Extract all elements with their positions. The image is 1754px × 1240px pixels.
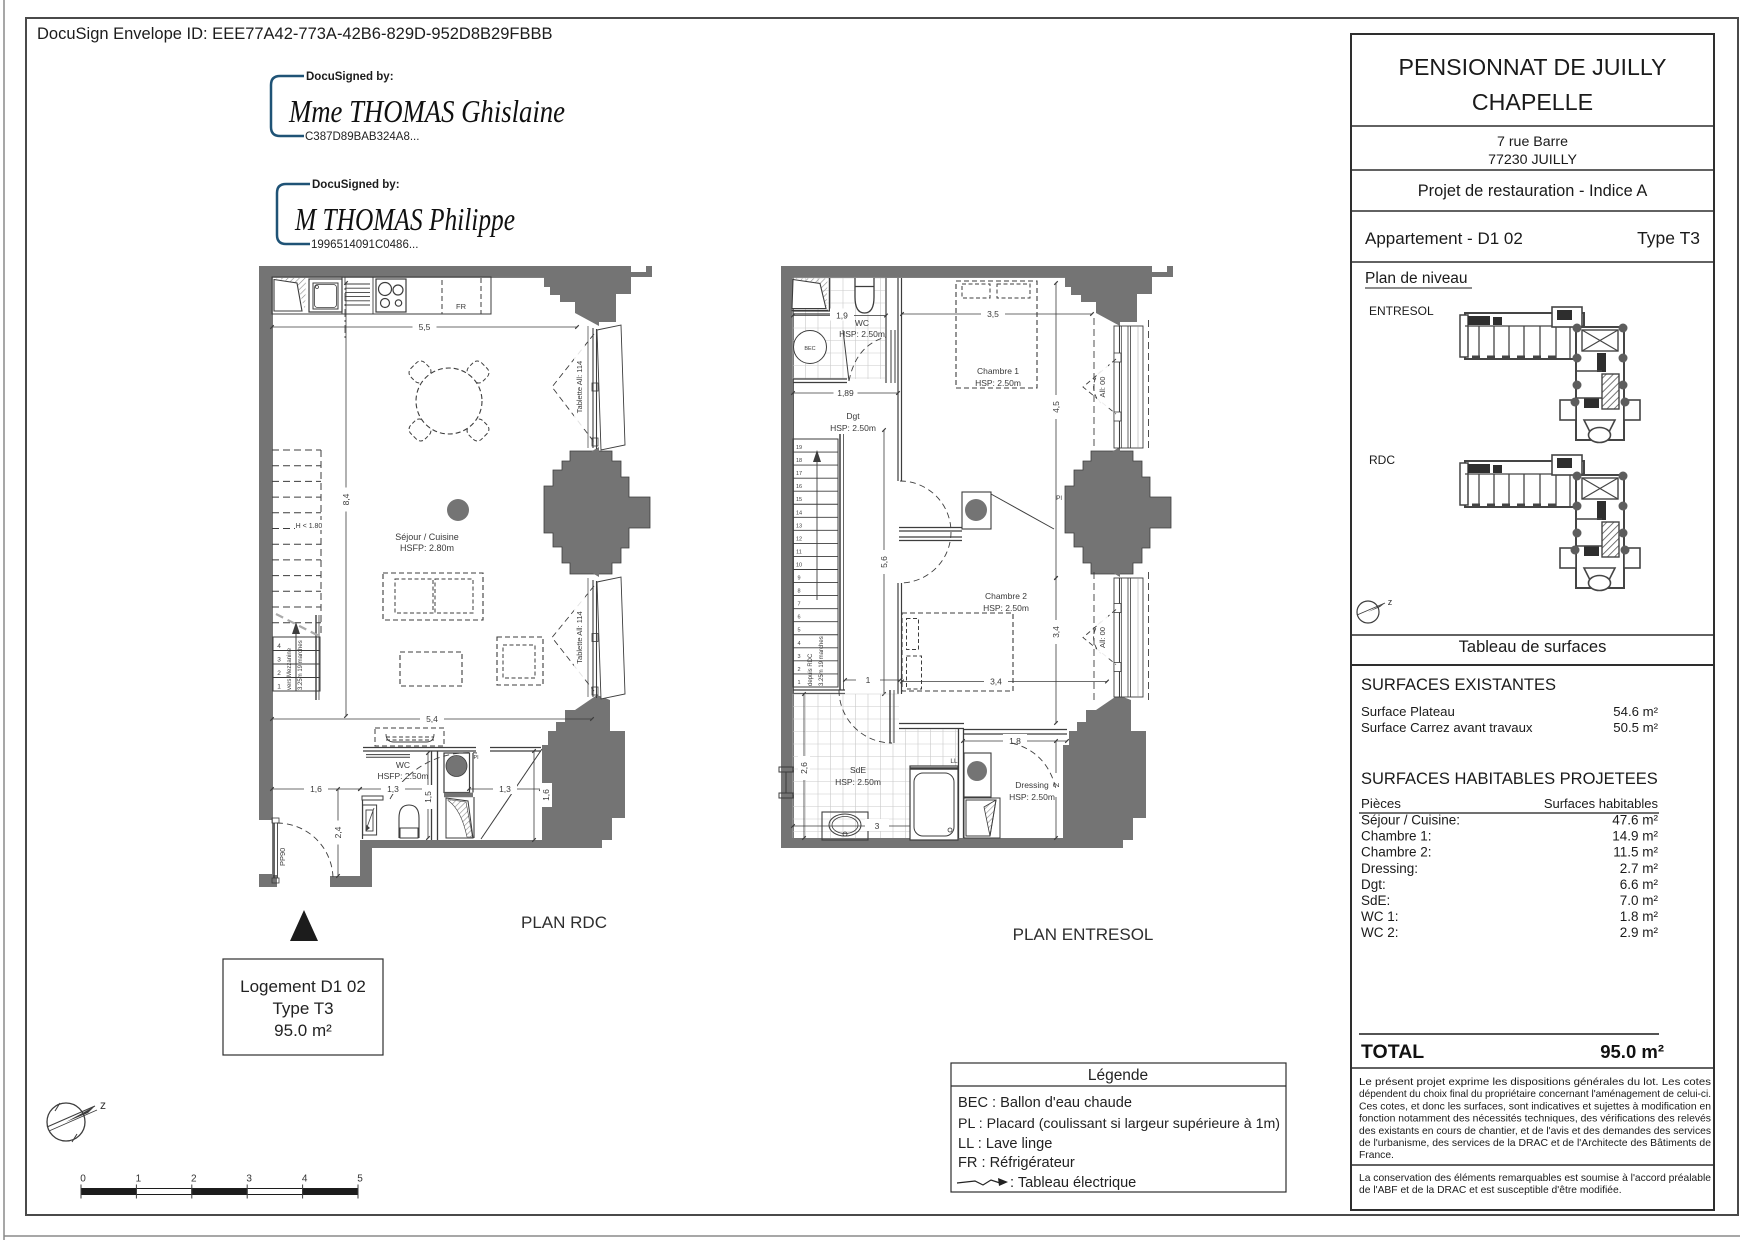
- svg-text:de l'ABF et de la DRAC et est: de l'ABF et de la DRAC et est susceptibl…: [1359, 1185, 1622, 1196]
- svg-text:Mme THOMAS Ghislaine: Mme THOMAS Ghislaine: [288, 93, 565, 129]
- svg-text:PENSIONNAT DE JUILLY: PENSIONNAT DE JUILLY: [1398, 54, 1666, 80]
- svg-text:Surface Carrez avant travaux: Surface Carrez avant travaux: [1361, 720, 1533, 735]
- svg-text:HSP: 2.50m: HSP: 2.50m: [1009, 792, 1055, 802]
- svg-text:12: 12: [796, 536, 802, 542]
- svg-text:Plan de niveau: Plan de niveau: [1365, 270, 1468, 287]
- svg-text:3,5: 3,5: [987, 309, 999, 319]
- svg-text:17: 17: [796, 471, 802, 477]
- svg-text:1,3: 1,3: [387, 784, 399, 794]
- svg-text:2.9 m²: 2.9 m²: [1620, 925, 1659, 940]
- svg-text:LL: LL: [950, 758, 958, 765]
- svg-text:5,5: 5,5: [419, 322, 431, 332]
- svg-text:WC 2:: WC 2:: [1361, 925, 1399, 940]
- svg-text:Surface Plateau: Surface Plateau: [1361, 704, 1455, 719]
- svg-text:HSP: 2.50m: HSP: 2.50m: [839, 329, 885, 339]
- svg-text:11: 11: [796, 549, 802, 555]
- svg-text:All: 00: All: 00: [1098, 377, 1107, 398]
- svg-text:HSP: 2.50m: HSP: 2.50m: [975, 378, 1021, 388]
- svg-text:de l'urbanisme, des services d: de l'urbanisme, des services de la DRAC …: [1359, 1138, 1711, 1149]
- svg-text:8,4: 8,4: [341, 493, 351, 505]
- svg-text:WC: WC: [855, 318, 869, 328]
- svg-text:15: 15: [796, 497, 802, 503]
- svg-text:4: 4: [277, 643, 281, 650]
- svg-text:5,6: 5,6: [879, 556, 889, 568]
- svg-text:Pièces: Pièces: [1361, 796, 1401, 811]
- svg-text:M THOMAS Philippe: M THOMAS Philippe: [294, 201, 515, 237]
- svg-text:7 rue Barre: 7 rue Barre: [1497, 134, 1568, 150]
- svg-text:18: 18: [796, 458, 802, 464]
- svg-text:2,6: 2,6: [799, 762, 809, 774]
- svg-text:fonction notamment des nécessi: fonction notamment des nécessités techni…: [1359, 1114, 1711, 1125]
- svg-text:All: 00: All: 00: [1098, 627, 1107, 648]
- svg-text:Projet de restauration - Indic: Projet de restauration - Indice A: [1418, 182, 1648, 200]
- svg-text:1996514091C0486...: 1996514091C0486...: [311, 239, 418, 251]
- svg-text:13: 13: [796, 523, 802, 529]
- svg-text:HSFP: 2.80m: HSFP: 2.80m: [400, 543, 454, 553]
- svg-text:3.25m 19 marches: 3.25m 19 marches: [298, 640, 304, 690]
- svg-text:Logement D1 02: Logement D1 02: [240, 977, 366, 996]
- svg-text:95.0 m²: 95.0 m²: [1600, 1041, 1664, 1062]
- svg-text:2: 2: [797, 667, 800, 673]
- svg-text:2.7 m²: 2.7 m²: [1620, 861, 1659, 876]
- svg-text:BEC : Ballon d'eau chaude: BEC : Ballon d'eau chaude: [958, 1095, 1132, 1111]
- svg-text:3: 3: [277, 657, 281, 664]
- svg-text:Chambre 2:: Chambre 2:: [1361, 845, 1432, 860]
- svg-text:5,4: 5,4: [426, 714, 438, 724]
- svg-text:7.0 m²: 7.0 m²: [1620, 893, 1659, 908]
- svg-text:Tableau de surfaces: Tableau de surfaces: [1459, 638, 1607, 656]
- svg-text:Dressing:: Dressing:: [1361, 861, 1418, 876]
- svg-text:8: 8: [797, 589, 800, 595]
- svg-text:BEC: BEC: [804, 346, 815, 352]
- svg-text:50.5 m²: 50.5 m²: [1613, 720, 1658, 735]
- svg-text:14.9 m²: 14.9 m²: [1612, 829, 1658, 844]
- svg-text:4: 4: [797, 641, 800, 647]
- svg-text:2: 2: [277, 670, 281, 677]
- svg-text:5: 5: [797, 628, 800, 634]
- svg-text:54.6 m²: 54.6 m²: [1613, 704, 1658, 719]
- svg-text:DocuSigned by:: DocuSigned by:: [306, 71, 394, 83]
- svg-text:3: 3: [246, 1174, 252, 1185]
- svg-text:16: 16: [796, 484, 802, 490]
- svg-text:SdE:: SdE:: [1361, 893, 1390, 908]
- svg-text:4: 4: [302, 1174, 308, 1185]
- svg-text:Dressing: Dressing: [1015, 780, 1049, 790]
- svg-text:9: 9: [797, 576, 800, 582]
- svg-text:CHAPELLE: CHAPELLE: [1472, 89, 1593, 115]
- svg-text:Tablette All: 114: Tablette All: 114: [575, 611, 584, 663]
- svg-text:Chambre 1:: Chambre 1:: [1361, 829, 1432, 844]
- svg-text:3,4: 3,4: [1051, 626, 1061, 638]
- svg-text:SURFACES EXISTANTES: SURFACES EXISTANTES: [1361, 676, 1556, 694]
- svg-text:Pl: Pl: [1056, 495, 1062, 502]
- svg-text:Pl: Pl: [474, 755, 479, 761]
- svg-text:Chambre 1: Chambre 1: [977, 366, 1019, 376]
- svg-text:Type T3: Type T3: [272, 999, 333, 1018]
- svg-text:1,3: 1,3: [499, 784, 511, 794]
- svg-text:SdE: SdE: [850, 765, 866, 775]
- svg-text:6: 6: [797, 615, 800, 621]
- svg-text:2: 2: [191, 1174, 197, 1185]
- svg-text:WC 1:: WC 1:: [1361, 909, 1399, 924]
- svg-text:11.5 m²: 11.5 m²: [1613, 845, 1658, 860]
- svg-text:DocuSigned by:: DocuSigned by:: [312, 179, 400, 191]
- svg-text:PLAN ENTRESOL: PLAN ENTRESOL: [1013, 925, 1154, 944]
- svg-text:Séjour / Cuisine:: Séjour / Cuisine:: [1361, 813, 1460, 828]
- svg-text:1.8 m²: 1.8 m²: [1620, 909, 1659, 924]
- svg-text:Type T3: Type T3: [1637, 228, 1700, 248]
- svg-text:3: 3: [797, 654, 800, 660]
- svg-text:14: 14: [796, 510, 802, 516]
- svg-text:Appartement - D1 02: Appartement - D1 02: [1365, 229, 1523, 248]
- svg-text:: Tableau électrique: : Tableau électrique: [1010, 1175, 1136, 1191]
- svg-text:PL : Placard (coulissant si la: PL : Placard (coulissant si largeur supé…: [958, 1115, 1280, 1131]
- svg-text:z: z: [100, 1098, 106, 1112]
- svg-text:1,9: 1,9: [836, 311, 848, 321]
- svg-text:1: 1: [866, 675, 871, 685]
- svg-text:FR: FR: [456, 302, 467, 311]
- svg-text:0: 0: [80, 1174, 86, 1185]
- svg-text:SURFACES HABITABLES PROJETEES: SURFACES HABITABLES PROJETEES: [1361, 770, 1658, 788]
- svg-text:5: 5: [357, 1174, 363, 1185]
- svg-text:HSP: 2.50m: HSP: 2.50m: [830, 423, 876, 433]
- svg-text:1,5: 1,5: [423, 791, 433, 803]
- svg-text:HSP: 2.50m: HSP: 2.50m: [983, 603, 1029, 613]
- svg-text:Chambre 2: Chambre 2: [985, 591, 1027, 601]
- svg-text:3: 3: [875, 821, 880, 831]
- svg-text:1,6: 1,6: [310, 784, 322, 794]
- svg-text:95.0 m²: 95.0 m²: [274, 1021, 332, 1040]
- svg-text:RDC: RDC: [1369, 453, 1395, 467]
- svg-text:Dgt: Dgt: [846, 411, 860, 421]
- svg-text:1: 1: [797, 680, 800, 686]
- svg-text:depuis RDC: depuis RDC: [808, 653, 814, 686]
- svg-text:des existants en cours de chan: des existants en cours de chantier, et d…: [1359, 1126, 1711, 1137]
- svg-text:1: 1: [277, 684, 281, 691]
- svg-text:1,89: 1,89: [837, 388, 854, 398]
- svg-text:2,4: 2,4: [333, 826, 343, 838]
- svg-text:1,6: 1,6: [541, 789, 551, 801]
- svg-text:H < 1.80: H < 1.80: [296, 523, 323, 530]
- svg-text:HSP: 2.50m: HSP: 2.50m: [835, 777, 881, 787]
- svg-text:HSFP: 2.50m: HSFP: 2.50m: [377, 771, 428, 781]
- svg-text:dépendent du choix final du pr: dépendent du choix final du propriétaire…: [1359, 1089, 1711, 1100]
- svg-text:1,8: 1,8: [1009, 736, 1021, 746]
- svg-text:Surfaces habitables: Surfaces habitables: [1544, 796, 1659, 811]
- svg-text:vers Mezzanine: vers Mezzanine: [287, 647, 293, 690]
- svg-text:C387D89BAB324A8...: C387D89BAB324A8...: [305, 131, 419, 143]
- svg-text:TOTAL: TOTAL: [1361, 1041, 1424, 1063]
- svg-text:z: z: [1388, 597, 1393, 607]
- svg-text:Dgt:: Dgt:: [1361, 877, 1386, 892]
- svg-text:Séjour / Cuisine: Séjour / Cuisine: [395, 532, 459, 542]
- svg-text:2: 2: [1051, 782, 1061, 787]
- svg-text:FR : Réfrigérateur: FR : Réfrigérateur: [958, 1155, 1075, 1171]
- svg-text:Légende: Légende: [1088, 1067, 1148, 1084]
- svg-text:47.6 m²: 47.6 m²: [1612, 813, 1658, 828]
- svg-text:PLAN RDC: PLAN RDC: [521, 913, 607, 932]
- svg-text:6.6 m²: 6.6 m²: [1620, 877, 1659, 892]
- svg-text:Tablette All: 114: Tablette All: 114: [575, 361, 584, 413]
- svg-text:1: 1: [136, 1174, 142, 1185]
- svg-text:77230 JUILLY: 77230 JUILLY: [1488, 152, 1577, 168]
- svg-text:La conservation des éléments r: La conservation des éléments remarquable…: [1359, 1173, 1711, 1184]
- svg-text:ENTRESOL: ENTRESOL: [1369, 304, 1434, 318]
- svg-text:Le présent projet exprime les: Le présent projet exprime les dispositio…: [1359, 1077, 1711, 1088]
- svg-text:WC: WC: [396, 760, 410, 770]
- svg-text:Ces cotes, et donc les surface: Ces cotes, et donc les surfaces, sont in…: [1359, 1101, 1711, 1112]
- svg-text:10: 10: [796, 562, 802, 568]
- svg-text:France.: France.: [1359, 1150, 1394, 1161]
- svg-text:19: 19: [796, 445, 802, 451]
- svg-text:7: 7: [797, 602, 800, 608]
- svg-text:3.25m 19 marches: 3.25m 19 marches: [819, 636, 825, 686]
- svg-text:4,5: 4,5: [1051, 401, 1061, 413]
- svg-text:DocuSign Envelope ID: EEE77A42: DocuSign Envelope ID: EEE77A42-773A-42B6…: [37, 25, 552, 43]
- svg-text:PP90: PP90: [278, 848, 287, 866]
- svg-text:3,4: 3,4: [990, 677, 1002, 687]
- svg-text:LL : Lave linge: LL : Lave linge: [958, 1136, 1052, 1152]
